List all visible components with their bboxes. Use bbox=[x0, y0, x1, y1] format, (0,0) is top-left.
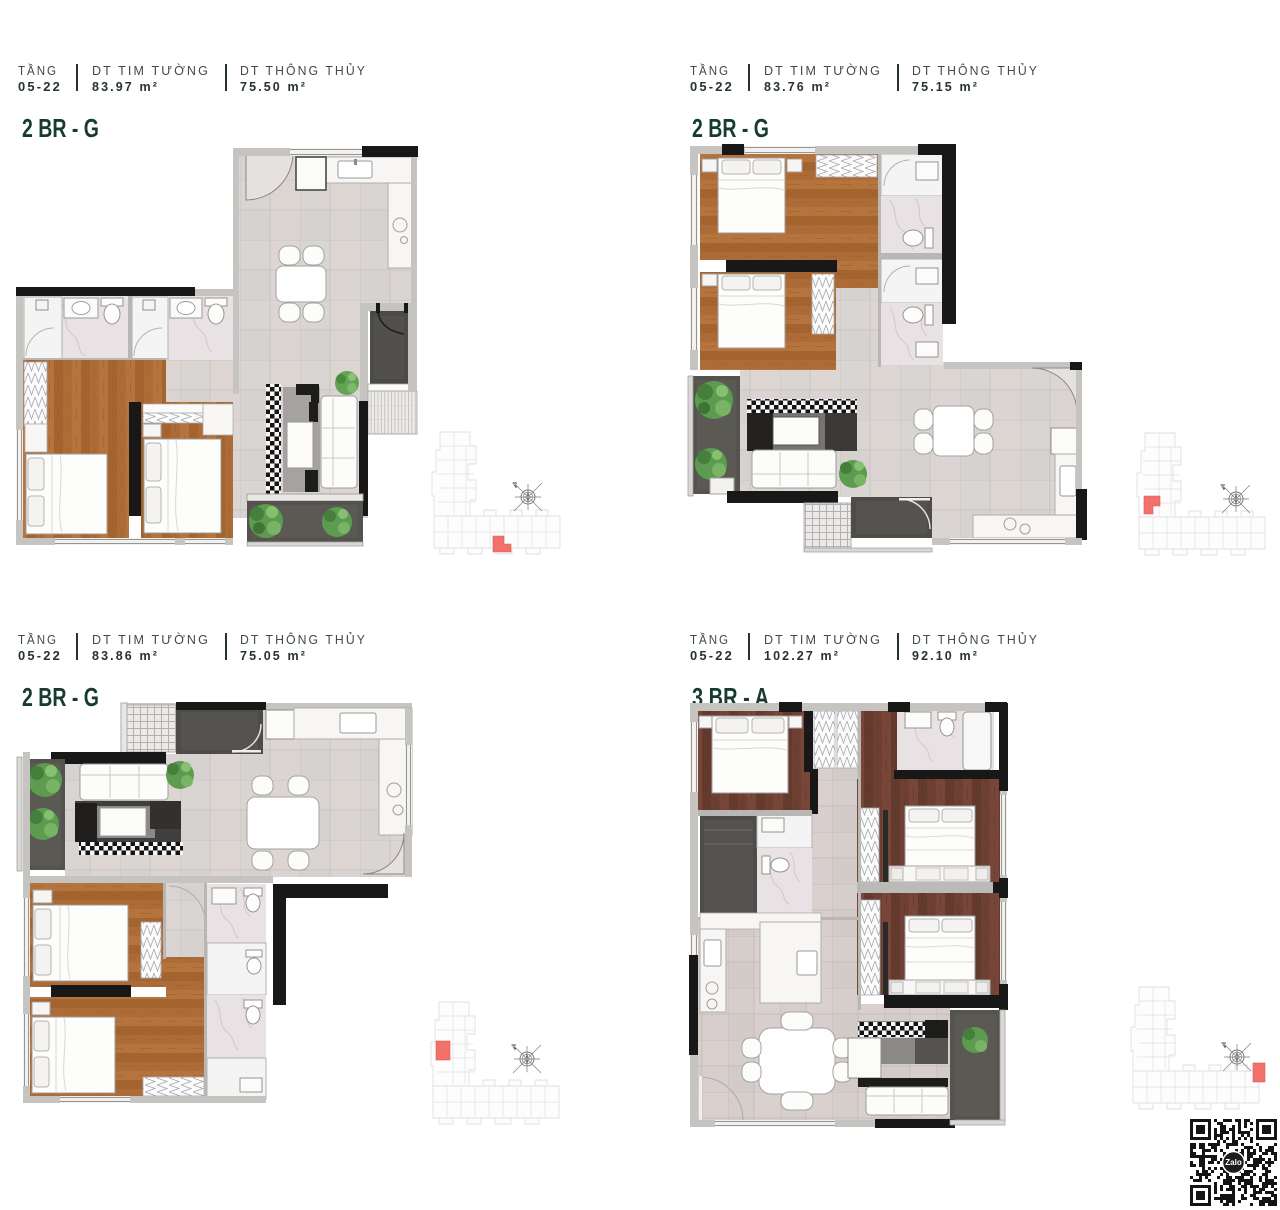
svg-text:05-22: 05-22 bbox=[18, 648, 62, 663]
svg-text:75.15 m²: 75.15 m² bbox=[912, 79, 979, 94]
svg-text:83.76 m²: 83.76 m² bbox=[764, 79, 831, 94]
svg-text:05-22: 05-22 bbox=[18, 79, 62, 94]
svg-text:DT TIM TƯỜNG: DT TIM TƯỜNG bbox=[764, 632, 882, 647]
svg-text:05-22: 05-22 bbox=[690, 79, 734, 94]
svg-text:DT TIM TƯỜNG: DT TIM TƯỜNG bbox=[92, 632, 210, 647]
svg-text:102.27 m²: 102.27 m² bbox=[764, 648, 840, 663]
svg-text:83.86 m²: 83.86 m² bbox=[92, 648, 159, 663]
svg-text:DT THÔNG THỦY: DT THÔNG THỦY bbox=[240, 63, 367, 78]
svg-text:DT THÔNG THỦY: DT THÔNG THỦY bbox=[912, 63, 1039, 78]
svg-text:05-22: 05-22 bbox=[690, 648, 734, 663]
svg-text:75.50 m²: 75.50 m² bbox=[240, 79, 307, 94]
svg-text:92.10 m²: 92.10 m² bbox=[912, 648, 979, 663]
svg-text:DT THÔNG THỦY: DT THÔNG THỦY bbox=[240, 632, 367, 647]
svg-text:2 BR - G: 2 BR - G bbox=[692, 113, 769, 143]
svg-text:TẦNG: TẦNG bbox=[18, 632, 58, 647]
svg-text:2 BR - G: 2 BR - G bbox=[22, 113, 99, 143]
svg-text:DT THÔNG THỦY: DT THÔNG THỦY bbox=[912, 632, 1039, 647]
svg-text:83.97 m²: 83.97 m² bbox=[92, 79, 159, 94]
svg-text:TẦNG: TẦNG bbox=[690, 63, 730, 78]
svg-text:Zalo: Zalo bbox=[1225, 1158, 1242, 1167]
svg-text:TẦNG: TẦNG bbox=[690, 632, 730, 647]
svg-text:2 BR - G: 2 BR - G bbox=[22, 682, 99, 712]
svg-text:75.05 m²: 75.05 m² bbox=[240, 648, 307, 663]
svg-text:TẦNG: TẦNG bbox=[18, 63, 58, 78]
svg-text:DT TIM TƯỜNG: DT TIM TƯỜNG bbox=[92, 63, 210, 78]
svg-text:DT TIM TƯỜNG: DT TIM TƯỜNG bbox=[764, 63, 882, 78]
